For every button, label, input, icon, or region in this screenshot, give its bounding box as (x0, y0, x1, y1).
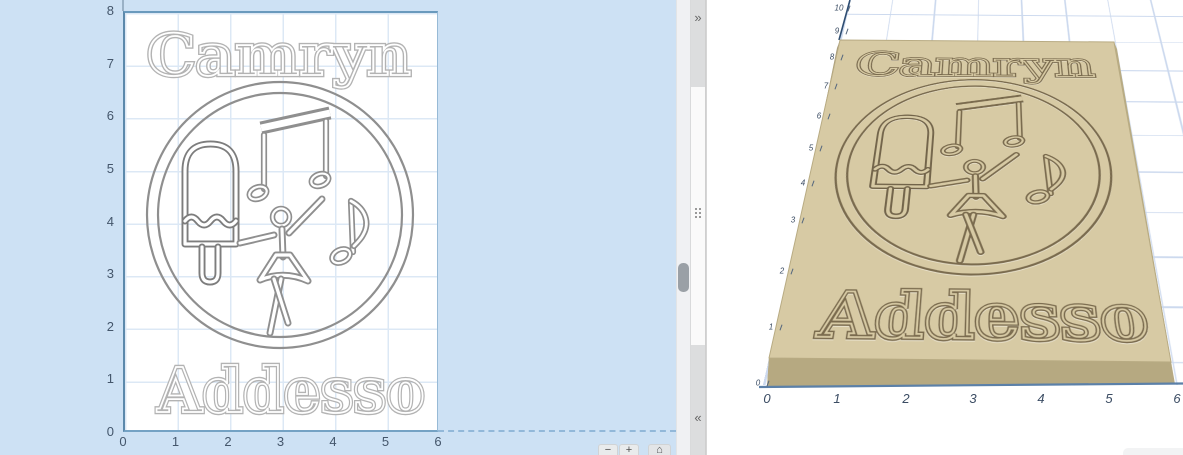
zoom-out-button[interactable]: − (598, 444, 618, 455)
x-tick: 4 (329, 435, 336, 449)
y-tick: 6 (0, 109, 114, 123)
y-tick: 5 (0, 162, 114, 176)
chevron-right-icon: » (694, 10, 701, 25)
x-tick-3d: 1 (833, 391, 840, 406)
design-artwork-2d[interactable] (123, 11, 438, 432)
splitter-bottom-section (691, 345, 705, 455)
x-tick: 0 (119, 435, 126, 449)
x-tick-3d: 5 (1105, 391, 1112, 406)
bottom-right-toolbar-edge (1123, 448, 1183, 455)
y-tick-3d: 7 (824, 82, 828, 91)
design-2d-pane[interactable]: 876543210 0123456 − + ⌂ (0, 0, 676, 455)
scrollbar-thumb[interactable] (678, 263, 689, 292)
preview-3d-pane[interactable]: 0123456 012345678910 (706, 0, 1183, 455)
x-tick-3d: 4 (1037, 391, 1044, 406)
y-tick: 0 (0, 425, 114, 439)
x-tick-3d: 0 (763, 391, 770, 406)
y-tick: 3 (0, 267, 114, 281)
home-icon: ⌂ (656, 444, 663, 455)
y-tick: 2 (0, 320, 114, 334)
plus-icon: + (626, 444, 632, 455)
splitter-drag-handle-icon[interactable] (695, 208, 701, 218)
y-tick-3d: 4 (801, 179, 805, 188)
x-tick-3d: 2 (902, 391, 909, 406)
home-view-button[interactable]: ⌂ (648, 444, 671, 455)
y-tick-3d: 3 (791, 216, 795, 225)
app-window: 876543210 0123456 − + ⌂ » « (0, 0, 1183, 455)
work-area-dashed-line-top (122, 0, 124, 11)
x-tick: 5 (382, 435, 389, 449)
y-tick-3d: 0 (756, 379, 760, 388)
y-tick-3d: 8 (830, 53, 834, 62)
x-tick: 1 (172, 435, 179, 449)
collapse-right-button[interactable]: » (691, 11, 705, 24)
work-area-dashed-line-bottom (438, 430, 676, 432)
board-front-face (767, 358, 1175, 387)
y-tick-3d: 1 (769, 323, 773, 332)
y-tick: 8 (0, 4, 114, 18)
y-tick-3d: 5 (809, 144, 813, 153)
panel-splitter[interactable]: » « (690, 0, 706, 455)
y-tick: 4 (0, 215, 114, 229)
vertical-scrollbar[interactable] (676, 0, 690, 455)
y-tick: 7 (0, 57, 114, 71)
chevron-left-icon: « (694, 410, 701, 425)
y-tick: 1 (0, 372, 114, 386)
y-tick-3d: 9 (835, 27, 839, 36)
x-tick-3d: 3 (969, 391, 976, 406)
x-tick: 3 (277, 435, 284, 449)
y-tick-3d: 6 (817, 112, 821, 121)
x-tick: 2 (224, 435, 231, 449)
x-tick-3d: 6 (1173, 391, 1180, 406)
x-tick: 6 (434, 435, 441, 449)
y-tick-3d: 10 (835, 4, 844, 13)
material-canvas[interactable] (123, 11, 438, 432)
zoom-in-button[interactable]: + (619, 444, 639, 455)
y-tick-3d: 2 (780, 267, 784, 276)
collapse-left-button[interactable]: « (691, 411, 705, 424)
minus-icon: − (605, 444, 611, 455)
engraved-design-3d (769, 40, 1171, 362)
